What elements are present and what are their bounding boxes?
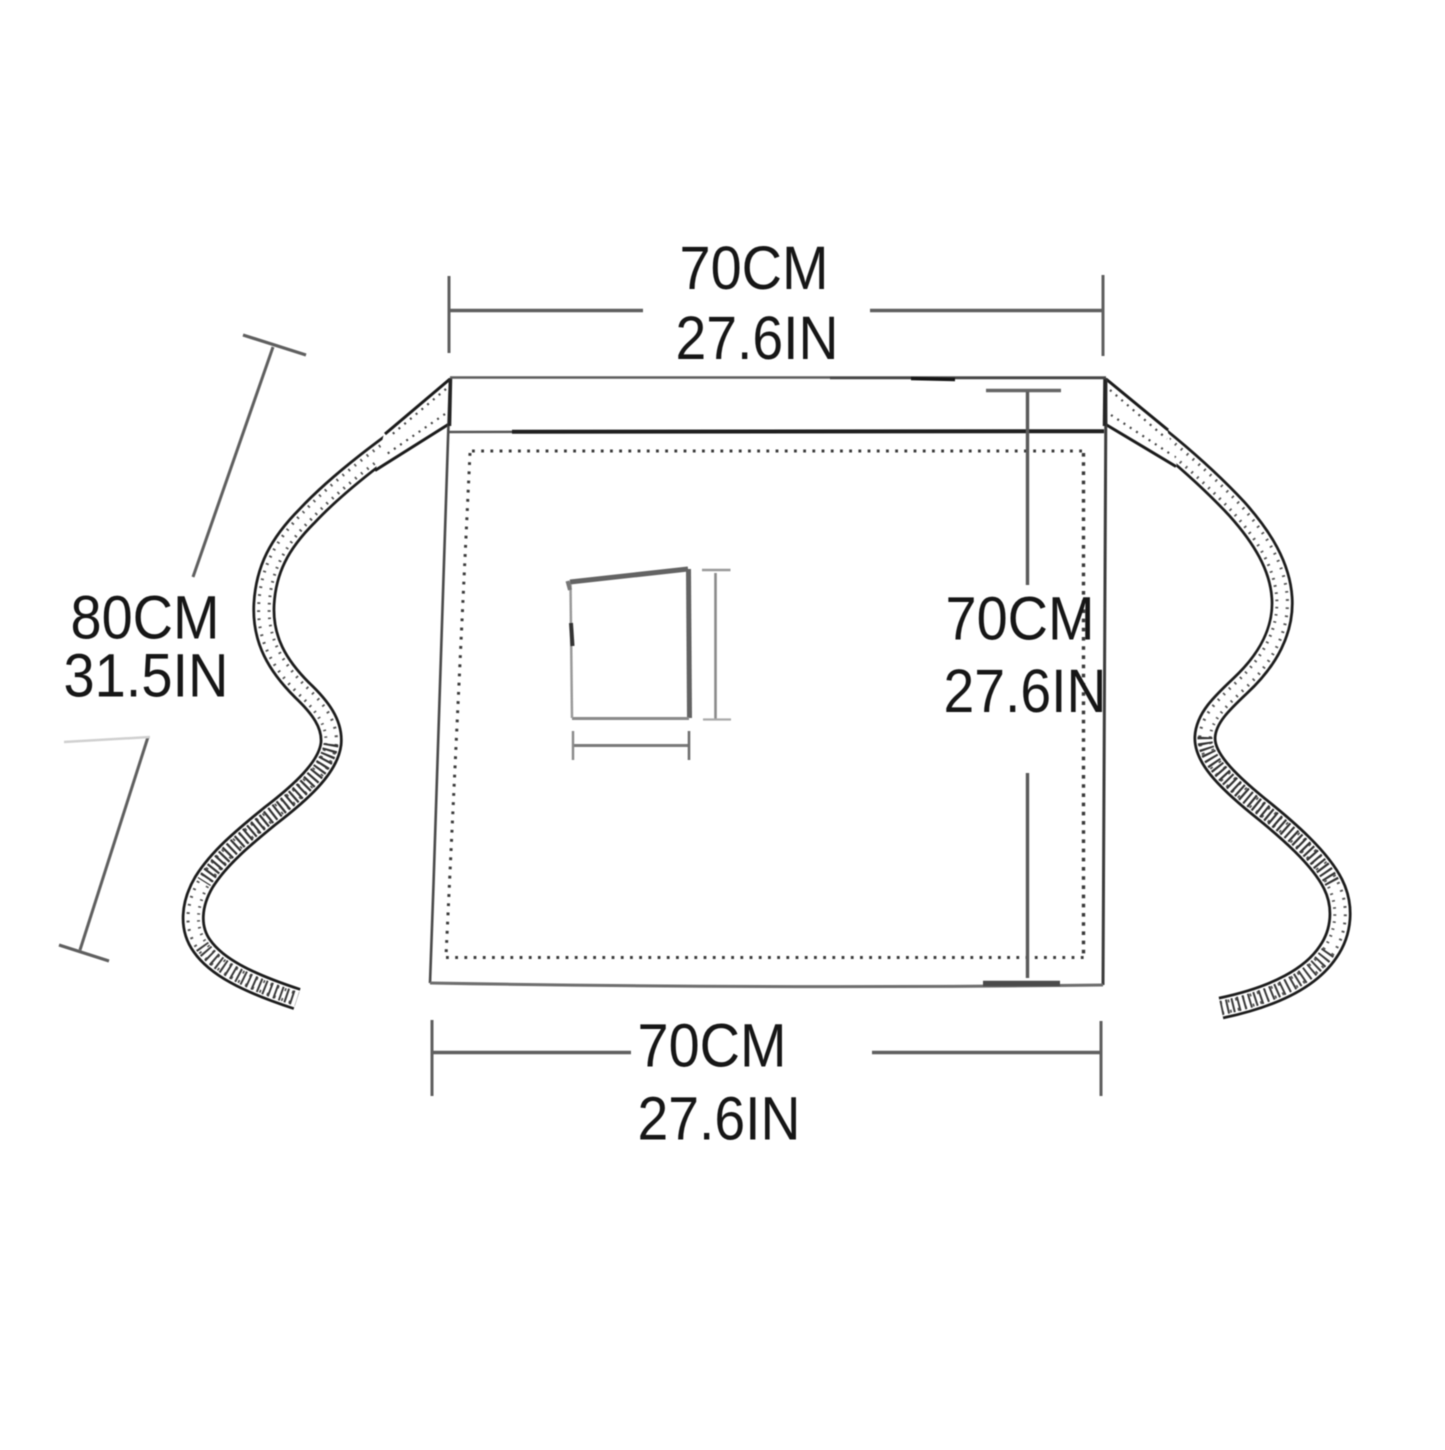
svg-text:31.5IN: 31.5IN [64,642,229,710]
svg-text:70CM: 70CM [946,585,1095,653]
svg-text:70CM: 70CM [638,1012,787,1080]
svg-text:70CM: 70CM [680,234,829,302]
svg-text:27.6IN: 27.6IN [638,1085,801,1153]
svg-text:27.6IN: 27.6IN [676,304,839,372]
svg-text:27.6IN: 27.6IN [944,657,1107,725]
